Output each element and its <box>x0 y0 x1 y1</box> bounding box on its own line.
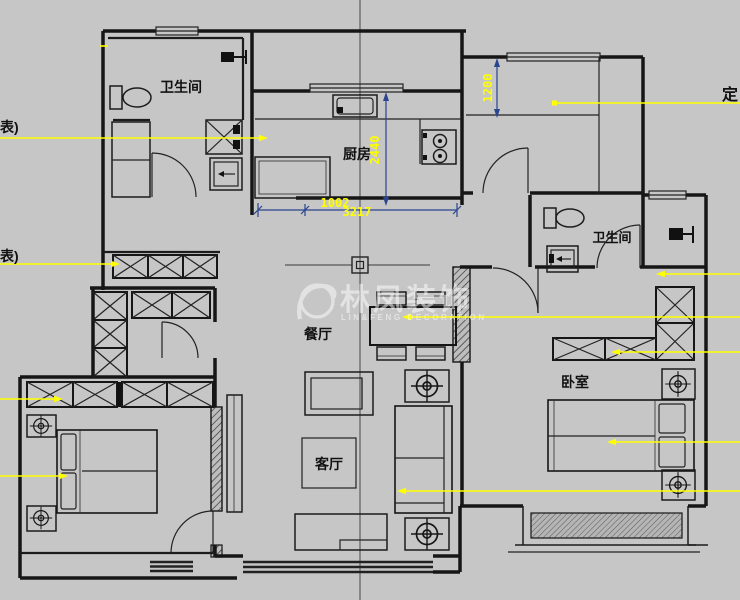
ceiling-lamp-symbol <box>405 518 449 550</box>
room-label-dining: 餐厅 <box>303 326 332 342</box>
leader-right-2 <box>656 271 740 277</box>
wardrobe-cell <box>167 382 213 407</box>
room-label-bedroom: 卧室 <box>561 374 589 390</box>
wardrobe-cell <box>113 255 148 278</box>
door-bedroom-right <box>493 268 538 313</box>
hall-cabinets <box>93 255 217 377</box>
dimension-kitchen-depth: 2440 <box>368 92 389 206</box>
wardrobe-cell <box>122 382 167 407</box>
dimension-closet-depth: 1200 <box>481 58 500 118</box>
kitchen-sink-icon <box>333 95 377 117</box>
door-bedroom-left <box>171 511 213 553</box>
wardrobe-cell <box>132 292 172 318</box>
dining-chair <box>377 347 406 360</box>
door-top-right-room <box>483 148 528 193</box>
door-bathroom1 <box>152 153 196 197</box>
leader-right-5 <box>607 439 740 445</box>
armchair <box>305 372 373 415</box>
edge-label-left-upper: 表) <box>0 119 19 135</box>
room-label-bathroom2: 卫生间 <box>592 230 631 245</box>
floorplan-canvas: 2440 1200 1002 3217 <box>0 0 740 600</box>
bay-window <box>508 506 708 552</box>
edge-label-left-lower: 表) <box>0 248 19 264</box>
watermark-subtitle: LIN&FENG DECORATION <box>341 313 487 322</box>
leader-right-6 <box>397 488 740 494</box>
edge-label-right-upper: 定 <box>721 85 738 104</box>
nightstand-lamp-symbol <box>27 506 56 531</box>
watermark-logo-icon <box>299 285 334 319</box>
wardrobe-cell <box>73 382 117 407</box>
wardrobe-cell <box>148 255 183 278</box>
wardrobe-cell <box>183 255 217 278</box>
wardrobe-cell <box>656 323 694 360</box>
bedroom-right-furniture <box>508 287 708 552</box>
floorplan-drawing: 2440 1200 1002 3217 <box>0 0 740 600</box>
leader-right-4 <box>611 349 740 355</box>
wardrobe-cell <box>93 348 127 377</box>
wardrobe-cell <box>93 320 127 348</box>
room-label-living: 客厅 <box>314 456 343 472</box>
utility-heater-icon <box>669 226 693 243</box>
kitchen-fixtures <box>255 57 599 198</box>
watermark: 林凤装饰 LIN&FENG DECORATION <box>299 284 487 322</box>
bedroom-left-furniture <box>27 382 242 531</box>
nightstand-lamp-symbol <box>662 470 695 500</box>
window-living-south <box>150 562 433 572</box>
washing-machine-icon <box>210 158 242 190</box>
kitchen-counter <box>255 157 330 198</box>
double-bed <box>57 430 157 513</box>
wardrobe-cell <box>605 338 656 360</box>
leader-right-1 <box>552 101 740 106</box>
dimension-value-overlap: 3217 <box>343 205 372 219</box>
wardrobe-cell <box>93 292 127 320</box>
nightstand-lamp-symbol <box>662 369 695 399</box>
room-label-kitchen: 厨房 <box>343 146 371 162</box>
toilet-icon <box>544 208 584 228</box>
shower-stall <box>112 122 150 197</box>
room-label-bathroom1: 卫生间 <box>160 79 202 95</box>
wardrobe-cell <box>27 382 73 407</box>
tv-cabinet <box>295 514 387 550</box>
mop-sink-icon <box>206 120 242 154</box>
dimension-value: 1200 <box>481 74 495 103</box>
window-utility <box>649 191 686 199</box>
window-top-left <box>156 27 198 35</box>
sofa <box>395 406 452 513</box>
dining-chair <box>416 347 445 360</box>
side-cabinet <box>227 395 242 512</box>
leader-lines <box>0 46 740 494</box>
basin-icon <box>547 246 578 272</box>
wardrobe-cell <box>553 338 605 360</box>
stove-icon <box>420 119 456 164</box>
window-kitchen <box>310 84 403 92</box>
double-bed <box>548 400 694 471</box>
wardrobe-cell <box>172 292 210 318</box>
bathroom1-fixtures <box>110 50 246 197</box>
door-storage <box>162 322 198 358</box>
nightstand-lamp-symbol <box>27 415 56 437</box>
ceiling-lamp-symbol <box>405 370 449 402</box>
window-top-right <box>507 53 600 61</box>
toilet-icon <box>110 86 151 109</box>
